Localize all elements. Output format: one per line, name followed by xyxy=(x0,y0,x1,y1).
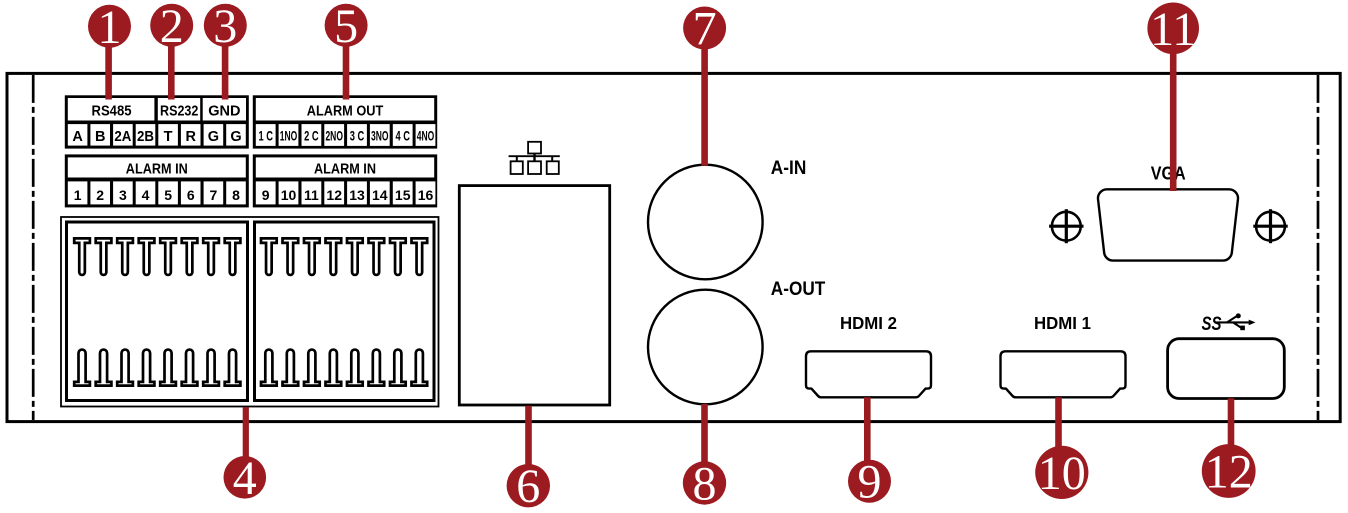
svg-text:8: 8 xyxy=(232,187,240,203)
svg-text:10: 10 xyxy=(1038,447,1086,500)
svg-text:A-IN: A-IN xyxy=(771,158,807,179)
svg-text:A: A xyxy=(72,129,83,145)
svg-text:RS485: RS485 xyxy=(92,103,132,119)
svg-text:ALARM OUT: ALARM OUT xyxy=(307,103,384,119)
svg-text:4: 4 xyxy=(233,452,257,505)
svg-text:1: 1 xyxy=(98,1,122,54)
svg-text:3: 3 xyxy=(213,0,237,53)
svg-text:15: 15 xyxy=(395,187,411,203)
svg-text:16: 16 xyxy=(418,187,434,203)
svg-text:ALARM IN: ALARM IN xyxy=(126,161,188,177)
svg-text:2: 2 xyxy=(96,187,104,203)
svg-text:A-OUT: A-OUT xyxy=(771,279,826,300)
svg-text:RS232: RS232 xyxy=(160,103,198,119)
svg-text:1NO: 1NO xyxy=(280,129,298,144)
svg-text:2: 2 xyxy=(160,0,184,53)
svg-text:2B: 2B xyxy=(137,129,154,145)
svg-text:2NO: 2NO xyxy=(325,129,343,144)
svg-text:14: 14 xyxy=(372,187,388,203)
svg-text:1: 1 xyxy=(74,187,82,203)
svg-text:3: 3 xyxy=(119,187,127,203)
svg-text:B: B xyxy=(95,129,105,145)
svg-text:HDMI 1: HDMI 1 xyxy=(1034,313,1091,333)
svg-text:5: 5 xyxy=(164,187,172,203)
svg-text:13: 13 xyxy=(349,187,365,203)
svg-text:R: R xyxy=(186,129,197,145)
svg-text:HDMI 2: HDMI 2 xyxy=(840,313,897,333)
svg-text:VGA: VGA xyxy=(1151,163,1186,184)
svg-text:10: 10 xyxy=(281,187,297,203)
svg-text:3 C: 3 C xyxy=(350,129,365,144)
svg-text:G: G xyxy=(230,129,241,145)
svg-text:3NO: 3NO xyxy=(371,129,389,144)
svg-text:GND: GND xyxy=(208,103,240,119)
svg-text:SS: SS xyxy=(1202,314,1222,335)
svg-text:8: 8 xyxy=(693,458,717,511)
svg-text:G: G xyxy=(208,129,219,145)
svg-text:4: 4 xyxy=(142,187,150,203)
svg-text:2 C: 2 C xyxy=(304,129,319,144)
svg-text:9: 9 xyxy=(262,187,270,203)
svg-text:T: T xyxy=(164,129,173,145)
svg-text:7: 7 xyxy=(693,3,717,56)
svg-text:5: 5 xyxy=(334,0,358,53)
svg-text:1 C: 1 C xyxy=(258,129,273,144)
svg-text:6: 6 xyxy=(187,187,195,203)
svg-text:4NO: 4NO xyxy=(417,129,435,144)
svg-text:11: 11 xyxy=(304,187,319,203)
svg-text:2A: 2A xyxy=(114,129,131,145)
svg-text:ALARM IN: ALARM IN xyxy=(314,161,376,177)
svg-text:6: 6 xyxy=(516,460,540,513)
svg-text:7: 7 xyxy=(210,187,218,203)
svg-text:4 C: 4 C xyxy=(395,129,410,144)
svg-text:9: 9 xyxy=(858,456,882,509)
svg-text:12: 12 xyxy=(1205,446,1253,499)
svg-text:11: 11 xyxy=(1150,3,1196,56)
svg-text:12: 12 xyxy=(326,187,342,203)
